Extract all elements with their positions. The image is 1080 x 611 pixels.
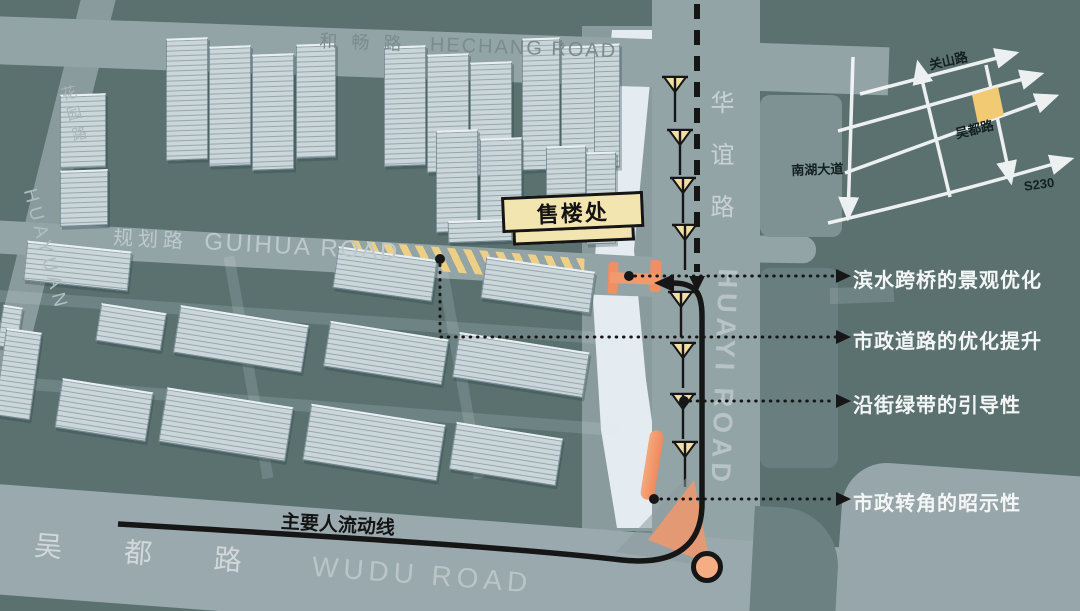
leader-2 [440,265,836,337]
annotation-greenbelt: 沿街绿带的引导性 [853,389,1021,418]
inset-road-nanhu [848,57,853,218]
annotation-bridge: 滨水跨桥的景观优化 [853,264,1042,293]
leader-dot [435,254,445,264]
leader-dot [679,396,689,406]
main-flow-line [118,283,702,561]
inset-road-mid [918,63,950,197]
arrow-right-icon [836,269,851,283]
annotation-corner: 市政转角的昭示性 [853,487,1021,516]
leader-dot [624,271,634,281]
inset-road-wudu [845,96,1056,173]
leader-dot [649,494,659,504]
arrow-right-icon [836,394,851,408]
inset-road-2 [838,74,1041,131]
inset-label-nanhu: 南湖大道 [791,158,844,179]
annotation-road: 市政道路的优化提升 [853,325,1042,354]
arrow-right-icon [836,330,851,344]
arrow-right-icon [836,492,851,506]
corner-node [694,554,721,581]
masterplan-diagram: 售楼处 和畅路 HECHANG ROAD 规划路 GUIHUA ROAD 花园路… [0,0,1080,611]
